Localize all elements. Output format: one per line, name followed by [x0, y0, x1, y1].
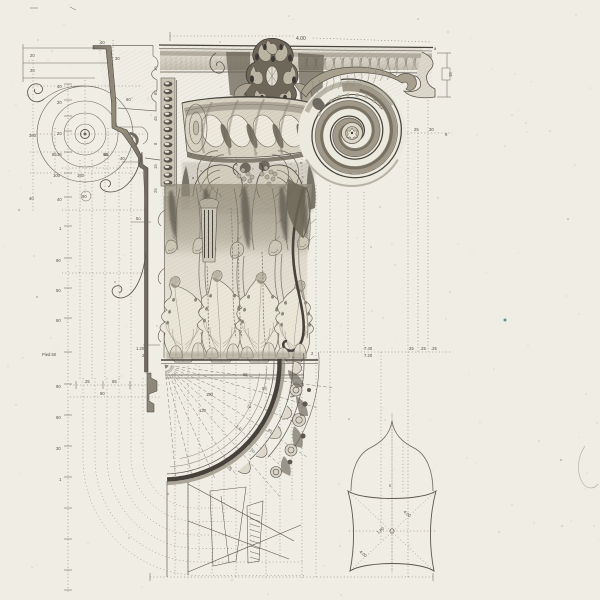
svg-text:25: 25: [409, 346, 414, 351]
svg-text:30: 30: [429, 127, 434, 132]
svg-text:.25: .25: [431, 346, 437, 351]
svg-text:40: 40: [57, 197, 62, 202]
svg-text:100: 100: [53, 173, 61, 178]
svg-text:20: 20: [57, 131, 62, 136]
svg-text:5o: 5o: [136, 216, 141, 221]
svg-text:20: 20: [30, 53, 35, 58]
svg-text:40: 40: [100, 40, 105, 45]
svg-text:180: 180: [206, 392, 214, 397]
svg-text:120: 120: [199, 408, 207, 413]
svg-text:15: 15: [153, 164, 158, 169]
svg-text:90: 90: [100, 391, 105, 396]
svg-text:60: 60: [56, 415, 61, 420]
svg-text:40: 40: [120, 156, 125, 161]
svg-text:25: 25: [153, 188, 158, 193]
svg-text:90: 90: [56, 384, 61, 389]
svg-text:Pied.50: Pied.50: [42, 352, 57, 357]
svg-text:40: 40: [29, 196, 34, 201]
svg-text:30: 30: [56, 446, 61, 451]
svg-text:90: 90: [82, 194, 87, 199]
svg-text:55: 55: [243, 372, 248, 377]
svg-text:160: 160: [77, 173, 85, 178]
svg-text:7.40: 7.40: [364, 346, 373, 351]
svg-text:360: 360: [29, 133, 37, 138]
svg-text:20: 20: [57, 100, 62, 105]
svg-text:1.20: 1.20: [136, 346, 145, 351]
svg-text:50: 50: [56, 288, 61, 293]
svg-text:25: 25: [414, 127, 419, 132]
svg-text:.25: .25: [420, 346, 426, 351]
svg-text:56: 56: [262, 386, 267, 391]
svg-text:60: 60: [56, 318, 61, 323]
svg-text:40: 40: [57, 84, 62, 89]
svg-text:55: 55: [104, 152, 109, 157]
svg-text:45: 45: [153, 116, 158, 121]
svg-text:85: 85: [52, 152, 57, 157]
svg-text:15: 15: [448, 72, 453, 77]
svg-text:7.20: 7.20: [364, 353, 373, 358]
svg-text:4.00: 4.00: [296, 36, 306, 42]
svg-text:90: 90: [56, 258, 61, 263]
svg-text:20: 20: [30, 68, 35, 73]
svg-text:65: 65: [112, 379, 117, 384]
svg-text:25: 25: [85, 379, 90, 384]
